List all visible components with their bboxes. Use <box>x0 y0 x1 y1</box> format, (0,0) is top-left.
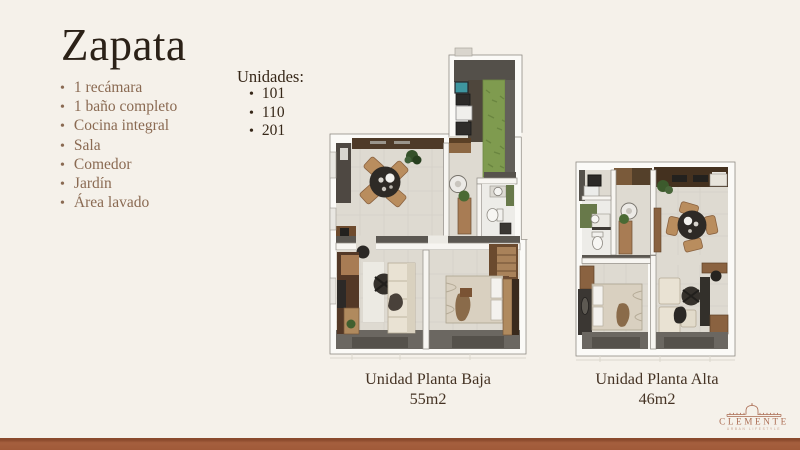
svg-text:URBAN LIFESTYLE: URBAN LIFESTYLE <box>727 427 781 431</box>
svg-text:CLEMENTE: CLEMENTE <box>719 417 789 427</box>
